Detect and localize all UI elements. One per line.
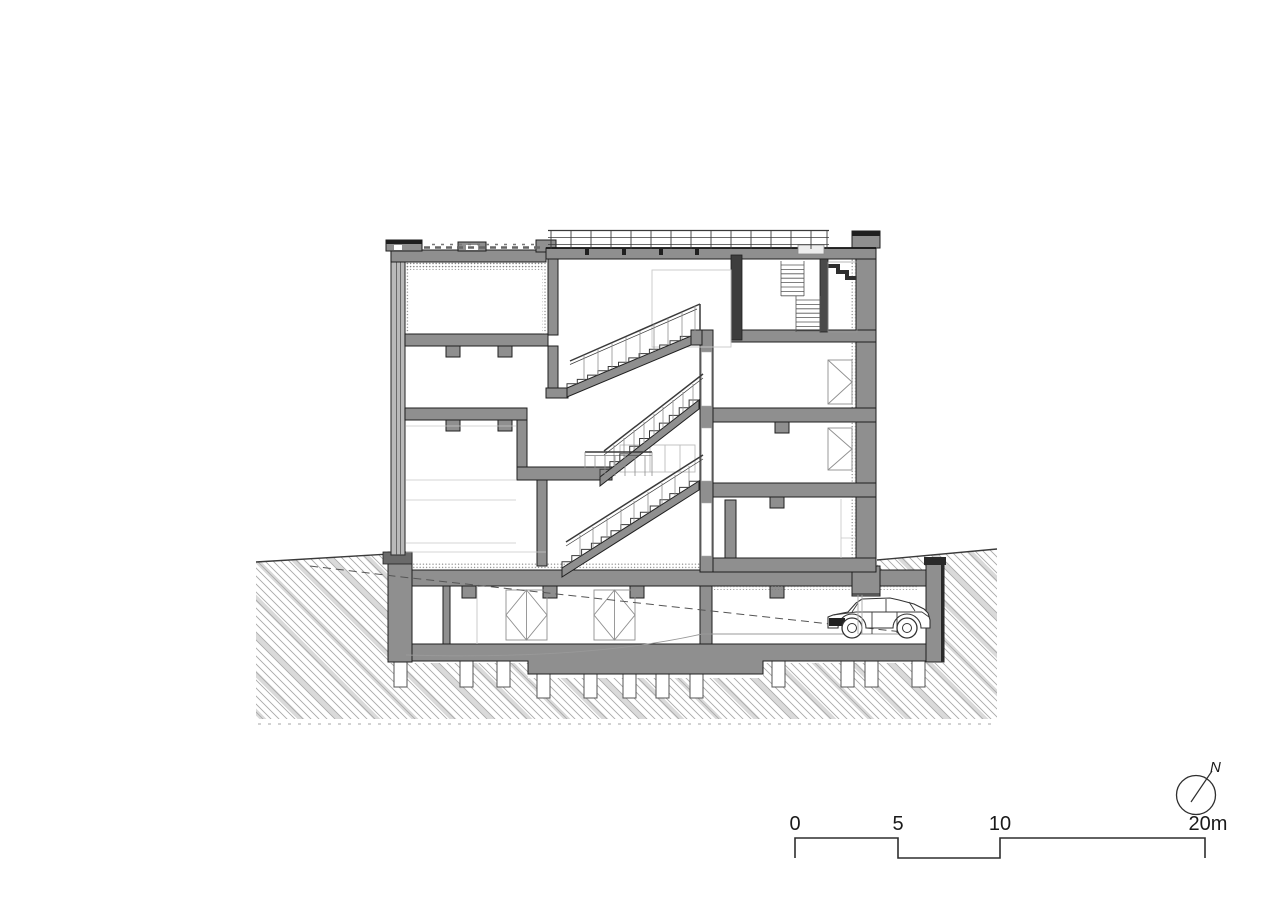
stair (562, 304, 703, 577)
north-label: N (1210, 759, 1221, 776)
basement-equipment-box (506, 590, 547, 640)
roof-slab-left (391, 250, 546, 262)
ground-left-hatch (256, 554, 390, 719)
car (828, 598, 930, 638)
closet-symbol (828, 428, 852, 470)
building-left-wall (391, 242, 405, 555)
basement-equipment-box (594, 590, 635, 640)
penthouse (731, 255, 857, 340)
garage-left-wall (700, 586, 712, 644)
drawing-sheet: 0 5 10 20m N (0, 0, 1280, 904)
scale-bar: 0 5 10 20m (789, 813, 1227, 858)
stair-flight-upper (567, 304, 702, 397)
basement-right-wall-cap (924, 557, 946, 565)
closet-symbol (828, 360, 852, 404)
door-openings (702, 352, 712, 556)
basement-right-wall-face (941, 560, 944, 662)
scale-bar-line (795, 838, 1205, 858)
scale-label-10: 10 (989, 813, 1011, 835)
right-bay-ground-slab (702, 558, 876, 572)
car-wheel (897, 618, 917, 638)
scale-label-0: 0 (789, 813, 800, 835)
stair-landing-slab (517, 467, 612, 480)
basement-left-wall (388, 552, 412, 662)
garage-ceiling-insulation (712, 586, 918, 590)
scale-label-5: 5 (892, 813, 903, 835)
car-wheel (842, 618, 862, 638)
roof-slab-main (546, 248, 876, 259)
section-drawing: 0 5 10 20m N (0, 0, 1280, 904)
north-arrow-icon: N (1177, 759, 1222, 815)
stair-landing-slab (546, 388, 568, 398)
basement-partition (443, 586, 450, 644)
penthouse-stair-ladder (781, 261, 820, 332)
scale-label-20m: 20m (1189, 813, 1228, 835)
